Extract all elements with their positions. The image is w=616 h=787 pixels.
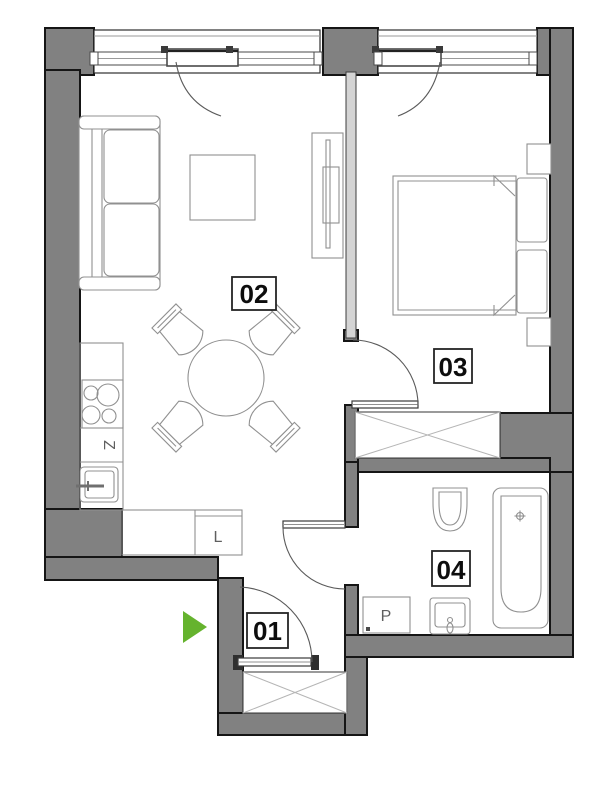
sofa	[79, 116, 160, 290]
room-label-bedroom: 03	[434, 349, 472, 383]
wall-top-pier	[323, 28, 378, 75]
room-label-living: 02	[232, 277, 276, 310]
bathroom-door-swing-arc	[283, 527, 345, 589]
bed-pillow	[517, 178, 547, 242]
room-label-bedroom-text: 03	[439, 352, 468, 382]
dining-table	[188, 340, 264, 416]
room-label-bathroom: 04	[432, 551, 470, 586]
wall-bath-bottom	[345, 635, 573, 657]
wall-right	[550, 28, 573, 657]
coffee-table	[190, 155, 255, 220]
window-hinge-icon	[226, 46, 233, 53]
window-living	[90, 30, 322, 116]
nightstand	[527, 318, 551, 346]
floor-plan: Z L	[0, 0, 616, 787]
washing-machine: P	[363, 597, 410, 633]
stove-burners	[82, 384, 119, 424]
window-hinge-icon	[436, 46, 443, 53]
wall-top-left-corner	[45, 28, 94, 75]
wall-left	[45, 70, 80, 580]
window-hinge-icon	[161, 46, 168, 53]
sofa-armrest	[79, 277, 160, 290]
tv-stand	[323, 167, 339, 223]
dining-set	[152, 304, 300, 452]
entry-arrow-icon	[183, 611, 207, 643]
entry-shaft	[243, 672, 347, 713]
window-bedroom	[372, 30, 537, 116]
wall-hall-pillar-bottom	[345, 585, 358, 635]
bathroom-sink	[430, 598, 470, 634]
bedroom-door-swing-arc	[353, 340, 418, 405]
room-label-entry: 01	[247, 613, 288, 648]
partition-living-bedroom	[346, 72, 356, 338]
wall-hall-pillar-top	[345, 462, 358, 527]
wall-bottom-left-band	[45, 557, 218, 580]
room-label-entry-text: 01	[253, 616, 282, 646]
tv-unit	[312, 133, 343, 258]
bedroom-door	[352, 340, 418, 408]
kitchen-sink	[76, 467, 118, 502]
sofa-armrest	[79, 116, 160, 129]
room-label-bathroom-text: 04	[437, 555, 466, 585]
bathtub	[493, 488, 548, 628]
kitchen-z-label: Z	[100, 440, 117, 450]
stove	[82, 380, 123, 428]
washing-machine-label: P	[381, 608, 392, 625]
toilet	[433, 488, 467, 531]
kitchen-l-label: L	[214, 529, 223, 546]
sofa-seat-cushion	[104, 130, 159, 203]
bed-pillow	[517, 250, 547, 313]
sofa-seat-cushion	[104, 204, 159, 276]
room-label-living-text: 02	[240, 279, 269, 309]
bed	[393, 176, 547, 315]
kitchen-counter-horizontal	[122, 510, 242, 555]
nightstand	[527, 144, 551, 174]
bathroom-door	[283, 521, 345, 589]
wall-bath-top	[345, 458, 550, 472]
bedroom-closet-shaft	[355, 412, 500, 458]
wall-kitchen-block	[45, 509, 122, 557]
